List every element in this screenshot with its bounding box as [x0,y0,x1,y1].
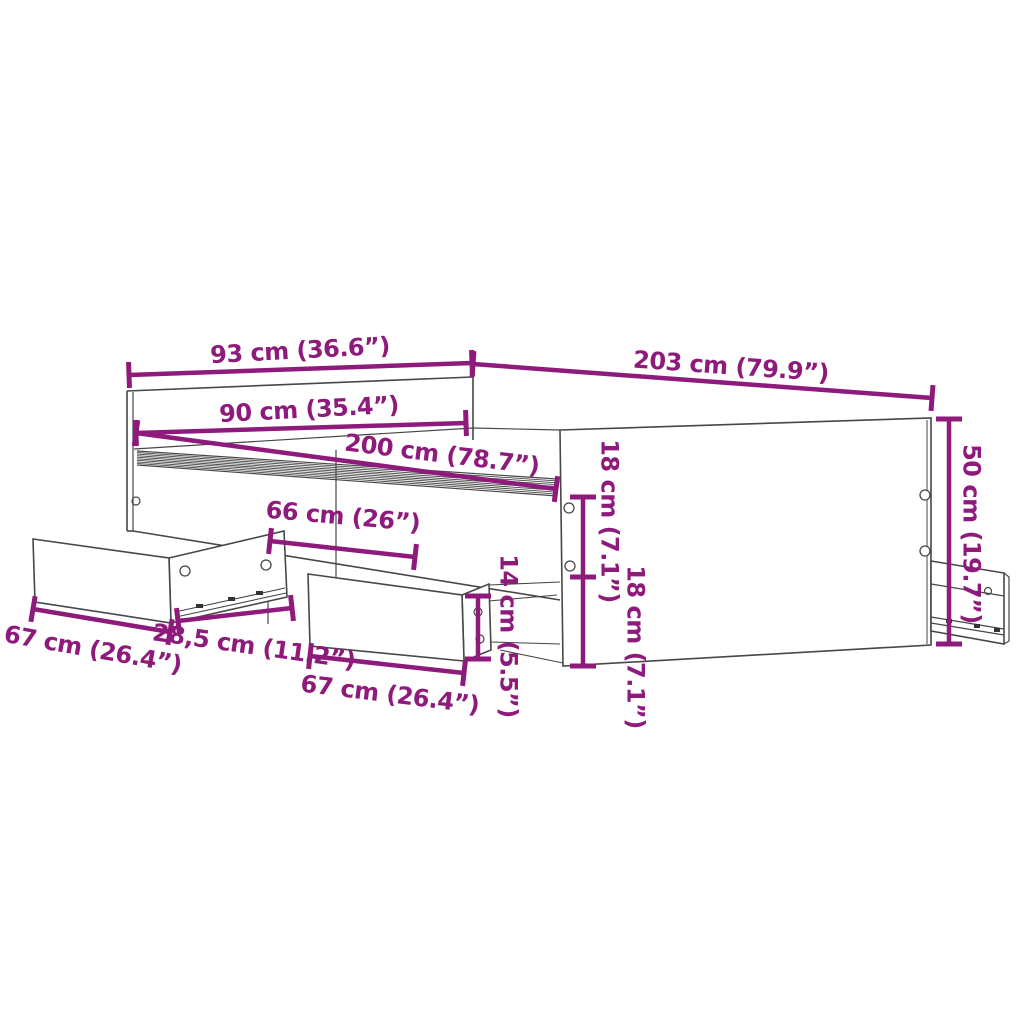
dimension-line [472,351,474,377]
dimension-label: 18 cm (7.1”) [622,565,650,729]
dimension-line [129,362,130,388]
dimension-label: 14 cm (5.5”) [495,554,523,718]
dimension-label: 67 cm (26.4”) [299,670,481,720]
dimension-line [414,544,417,570]
dimension-line [31,596,35,622]
dimension-label: 50 cm (19.7”) [958,444,986,624]
hardware-hole [920,546,930,556]
dimension-label: 90 cm (35.4”) [219,391,400,428]
dimension-line [931,385,933,411]
dimension-label: 93 cm (36.6”) [210,332,391,369]
dimension-line [134,420,137,446]
dimension-line [129,363,472,375]
hardware-hole [920,490,930,500]
dimension-line [554,476,557,502]
hardware-hole [564,503,574,513]
dimension-label: 18 cm (7.1”) [596,439,624,603]
dimension-line [269,528,272,554]
dimension-bed-length: 203 cm (79.9”) [472,346,933,411]
hardware-hole [565,561,575,571]
dimension-line [309,643,312,669]
dimension-drawer-opening-width: 66 cm (26”) [265,496,422,570]
drawer-left-outline [33,531,287,623]
dimension-line [463,660,466,686]
dimension-label: 66 cm (26”) [265,496,422,537]
dimension-line [466,410,467,436]
bed-frame-dimension-diagram: 93 cm (36.6”)203 cm (79.9”)90 cm (35.4”)… [0,0,1024,1024]
dimension-line [291,595,294,621]
dimension-line [270,541,415,557]
